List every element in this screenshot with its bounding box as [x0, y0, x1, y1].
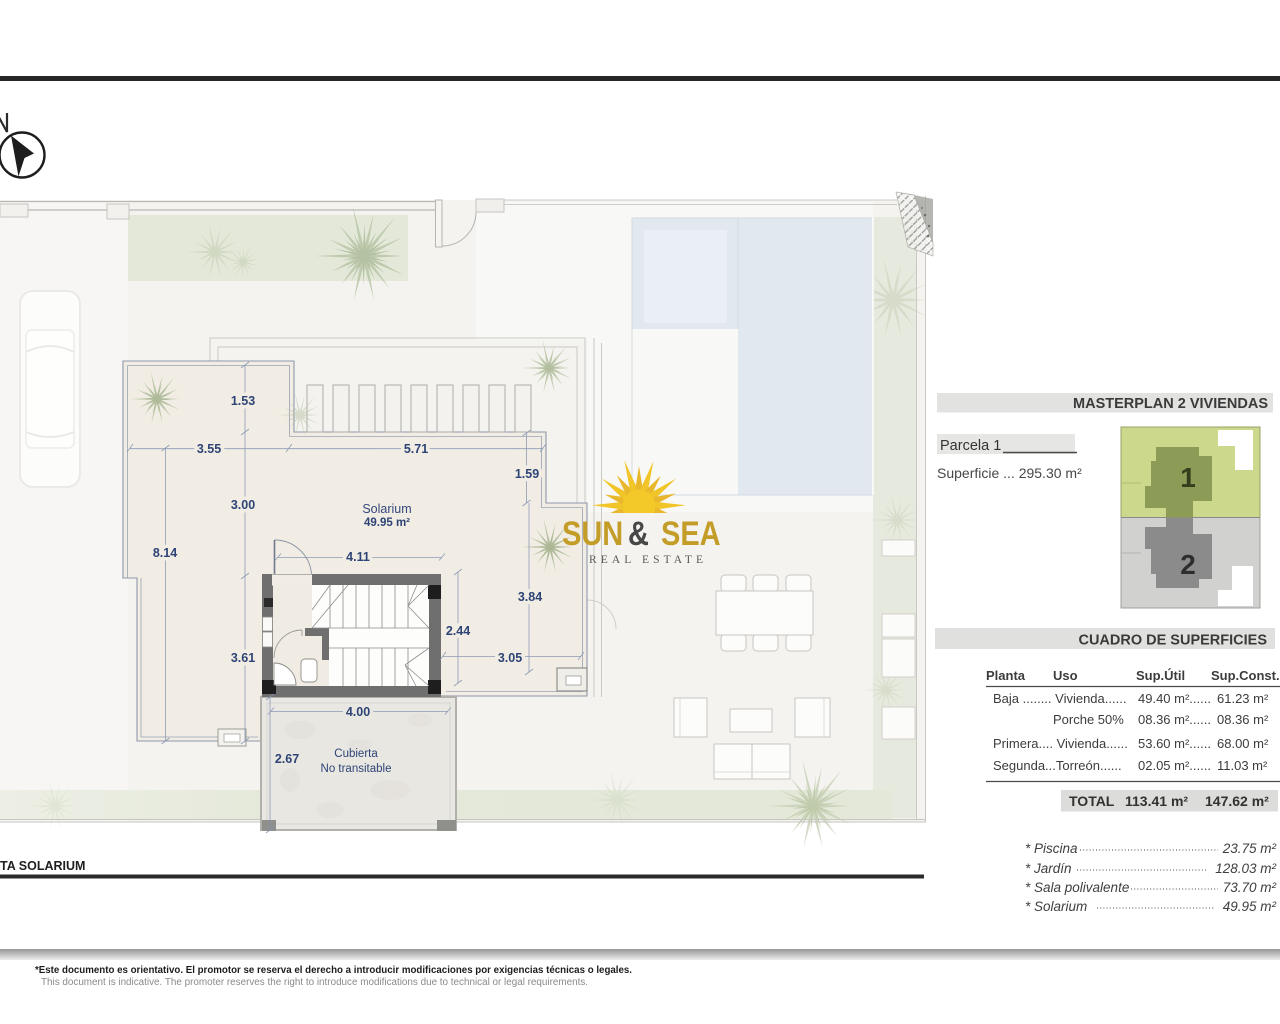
svg-text:3.84: 3.84 — [518, 590, 542, 604]
svg-text:Superficie ... 295.30 m²: Superficie ... 295.30 m² — [937, 465, 1082, 481]
svg-text:68.00 m²: 68.00 m² — [1217, 736, 1269, 751]
svg-text:1: 1 — [1180, 462, 1196, 493]
svg-text:128.03 m²: 128.03 m² — [1215, 861, 1276, 876]
svg-text:49.95 m²: 49.95 m² — [1223, 899, 1277, 914]
svg-text:61.23 m²: 61.23 m² — [1217, 691, 1269, 706]
svg-text:CUADRO DE SUPERFICIES: CUADRO DE SUPERFICIES — [1078, 633, 1267, 649]
svg-text:Porche 50%: Porche 50% — [1053, 712, 1124, 727]
svg-text:* Sala polivalente: * Sala polivalente — [1025, 880, 1129, 895]
svg-text:1.59: 1.59 — [515, 467, 539, 481]
svg-text:REAL ESTATE: REAL ESTATE — [589, 554, 707, 566]
svg-text:TOTAL: TOTAL — [1069, 793, 1115, 809]
svg-text:3.61: 3.61 — [231, 651, 255, 665]
svg-text:Sup.Útil: Sup.Útil — [1136, 668, 1185, 683]
svg-text:SEA: SEA — [661, 514, 721, 553]
svg-text:* Jardín: * Jardín — [1025, 861, 1072, 876]
svg-text:* Piscina: * Piscina — [1025, 841, 1078, 856]
svg-text:Sup.Const.: Sup.Const. — [1211, 668, 1280, 683]
svg-text:08.36 m²: 08.36 m² — [1217, 712, 1269, 727]
svg-text:3.55: 3.55 — [197, 442, 221, 456]
svg-text:5.71: 5.71 — [404, 442, 428, 456]
svg-text:2: 2 — [1180, 549, 1196, 580]
svg-text:49.40 m²......: 49.40 m²...... — [1138, 691, 1211, 706]
svg-text:113.41 m²: 113.41 m² — [1125, 793, 1188, 809]
svg-text:11.03 m²: 11.03 m² — [1217, 758, 1268, 773]
svg-text:Planta: Planta — [986, 668, 1026, 683]
svg-text:Segunda...Torreón......: Segunda...Torreón...... — [993, 758, 1122, 773]
svg-text:08.36 m²......: 08.36 m²...... — [1138, 712, 1211, 727]
svg-text:PLANTA SOLARIUM: PLANTA SOLARIUM — [0, 859, 85, 873]
svg-text:Parcela 1: Parcela 1 — [940, 438, 1001, 454]
svg-text:SUN: SUN — [562, 514, 623, 553]
svg-text:73.70 m²: 73.70 m² — [1223, 880, 1277, 895]
svg-text:2.44: 2.44 — [446, 624, 470, 638]
svg-text:Uso: Uso — [1053, 668, 1078, 683]
svg-text:147.62 m²: 147.62 m² — [1205, 793, 1269, 809]
svg-text:* Solarium: * Solarium — [1025, 899, 1087, 914]
svg-text:4.11: 4.11 — [346, 550, 370, 564]
svg-text:2.67: 2.67 — [275, 752, 299, 766]
svg-text:1.53: 1.53 — [231, 394, 255, 408]
svg-text:53.60 m²......: 53.60 m²...... — [1138, 736, 1211, 751]
svg-text:Primera.... Vivienda......: Primera.... Vivienda...... — [993, 736, 1128, 751]
svg-text:3.05: 3.05 — [498, 651, 522, 665]
svg-text:4.00: 4.00 — [346, 705, 370, 719]
svg-text:3.00: 3.00 — [231, 498, 255, 512]
svg-text:8.14: 8.14 — [153, 546, 177, 560]
svg-text:This document is indicative. T: This document is indicative. The promote… — [41, 977, 588, 988]
svg-text:Baja ........ Vivienda......: Baja ........ Vivienda...... — [993, 691, 1126, 706]
svg-text:MASTERPLAN 2 VIVIENDAS: MASTERPLAN 2 VIVIENDAS — [1073, 396, 1268, 412]
svg-text:No transitable: No transitable — [321, 763, 392, 775]
svg-text:&: & — [628, 514, 649, 553]
svg-text:Solarium: Solarium — [362, 502, 411, 516]
svg-text:Cubierta: Cubierta — [334, 748, 378, 760]
svg-text:49.95 m²: 49.95 m² — [364, 517, 410, 529]
svg-text:*Este documento es orientativo: *Este documento es orientativo. El promo… — [35, 965, 632, 976]
svg-text:23.75 m²: 23.75 m² — [1222, 841, 1277, 856]
svg-text:02.05 m²......: 02.05 m²...... — [1138, 758, 1211, 773]
